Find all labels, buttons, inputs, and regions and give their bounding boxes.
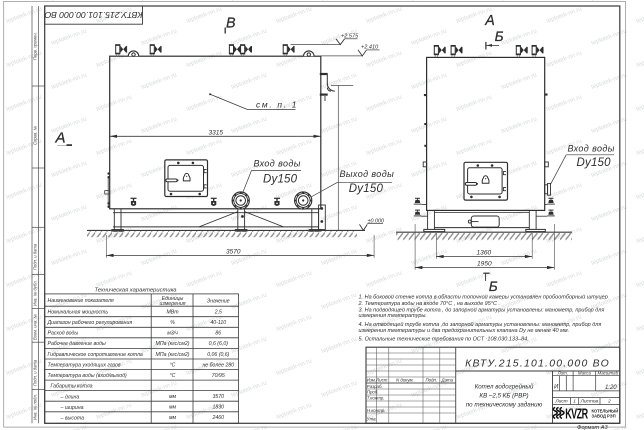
svg-text:Перв. примен.: Перв. примен. — [33, 32, 38, 60]
svg-text:1360: 1360 — [477, 250, 492, 257]
svg-text:Б: Б — [489, 279, 498, 294]
svg-text:1:20: 1:20 — [605, 385, 617, 391]
svg-text:Изм.Лист: Изм.Лист — [367, 378, 388, 383]
svg-text:Dy150: Dy150 — [349, 183, 384, 195]
svg-text:ЗАВОД РЭП: ЗАВОД РЭП — [592, 414, 616, 419]
svg-text:– ширина: – ширина — [60, 405, 84, 411]
svg-text:Лист: Лист — [554, 399, 567, 405]
svg-text:– длина: – длина — [60, 395, 80, 401]
svg-text:МПа (кгс/см2): МПа (кгс/см2) — [156, 352, 190, 358]
svg-text:МВт: МВт — [166, 310, 179, 316]
svg-text:Масштаб: Масштаб — [598, 371, 619, 376]
svg-text:3570: 3570 — [226, 249, 241, 256]
svg-text:2. Температура воды на входе: 2. Температура воды на входе 70°С , на в… — [358, 301, 501, 307]
svg-text:2460: 2460 — [212, 415, 225, 421]
svg-text:Вход воды: Вход воды — [568, 143, 615, 153]
svg-text:0,06 (0,6): 0,06 (0,6) — [207, 352, 229, 358]
svg-text:КВ –2,5 КБ (РВР): КВ –2,5 КБ (РВР) — [479, 392, 528, 399]
svg-text:Утв.: Утв. — [367, 417, 377, 422]
svg-text:Диапазон рабочего регулировани: Диапазон рабочего регулирования — [47, 320, 133, 326]
svg-text:4. На отводящей трубе котла ,: 4. На отводящей трубе котла ,до запорной… — [359, 321, 602, 328]
svg-text:Лит.: Лит. — [557, 371, 568, 376]
svg-text:Проб.: Проб. — [367, 390, 379, 395]
svg-text:– высота: – высота — [60, 415, 85, 421]
svg-text:Подп. и дата: Подп. и дата — [33, 359, 38, 386]
svg-text:2,5: 2,5 — [214, 310, 222, 316]
svg-text:см. п. 1: см. п. 1 — [256, 99, 298, 109]
svg-text:°С: °С — [170, 373, 176, 379]
svg-text:1950: 1950 — [477, 261, 492, 268]
svg-text:Т.контр.: Т.контр. — [367, 396, 385, 401]
svg-text:1: 1 — [573, 399, 576, 405]
svg-text:Dy150: Dy150 — [263, 173, 298, 185]
svg-text:Масса: Масса — [578, 371, 592, 376]
svg-text:измерения: измерения — [160, 301, 186, 307]
svg-text:Вход воды: Вход воды — [254, 159, 301, 169]
svg-text:1830: 1830 — [213, 405, 225, 411]
svg-text:Б: Б — [495, 29, 504, 44]
svg-text:Расход воды: Расход воды — [48, 331, 79, 337]
svg-text:Инв. № дубл.: Инв. № дубл. — [33, 280, 38, 306]
svg-text:Разраб.: Разраб. — [367, 384, 383, 389]
svg-text:Котел водогрейный: Котел водогрейный — [475, 383, 534, 390]
svg-text:Дата: Дата — [441, 378, 454, 383]
svg-text:1. На боковой стенке котла в: 1. На боковой стенке котла в области топ… — [359, 294, 608, 301]
svg-text:2: 2 — [607, 399, 611, 405]
svg-text:Инв. № подл.: Инв. № подл. — [33, 394, 38, 420]
svg-text:по техническому заданию: по техническому заданию — [466, 401, 543, 408]
svg-text:Габариты котла: Габариты котла — [51, 383, 93, 389]
svg-text:70/95: 70/95 — [212, 373, 225, 379]
svg-text:МПа (кгс/см2): МПа (кгс/см2) — [156, 341, 190, 347]
svg-text:Температура воды (вход/выход): Температура воды (вход/выход) — [48, 373, 127, 379]
svg-text:Наименование показателя: Наименование показателя — [48, 298, 114, 304]
svg-text:КВТУ.215.101.00.000 ВО: КВТУ.215.101.00.000 ВО — [465, 359, 610, 370]
svg-text:+2.575: +2.575 — [341, 33, 359, 39]
svg-text:%: % — [170, 320, 175, 326]
svg-text:Справ. №: Справ. № — [33, 126, 38, 145]
svg-text:KVZR: KVZR — [565, 405, 588, 422]
svg-text:Подп. и дата: Подп. и дата — [33, 243, 38, 270]
svg-text:+2.410: +2.410 — [361, 45, 379, 51]
svg-text:3570: 3570 — [213, 394, 225, 400]
svg-text:Dy150: Dy150 — [577, 157, 612, 169]
svg-text:5. Остальные технические треб: 5. Остальные технические требования по О… — [359, 337, 529, 343]
svg-text:А: А — [55, 130, 66, 147]
svg-text:Выход воды: Выход воды — [340, 169, 395, 179]
svg-text:КВТУ.215.101.00.000 ВО: КВТУ.215.101.00.000 ВО — [44, 10, 142, 20]
svg-text:0,6 (6,0): 0,6 (6,0) — [209, 341, 229, 347]
svg-text:В: В — [226, 16, 236, 32]
svg-text:измерения температуры и два пр: измерения температуры и два предохраните… — [359, 328, 570, 334]
svg-text:Формат А3: Формат А3 — [577, 425, 608, 430]
svg-text:40-110: 40-110 — [210, 320, 226, 326]
svg-text:°С: °С — [170, 362, 176, 368]
svg-text:Гидравлическое сопротивление к: Гидравлическое сопротивление котла — [48, 352, 143, 358]
svg-text:Значение: Значение — [207, 299, 230, 305]
svg-text:А: А — [484, 13, 495, 29]
svg-text:Подп.: Подп. — [426, 378, 438, 383]
svg-text:Температура уходящих газов: Температура уходящих газов — [48, 362, 121, 368]
svg-text:Взам. инв. №: Взам. инв. № — [33, 314, 38, 340]
svg-text:86: 86 — [215, 331, 221, 337]
svg-text:измерения температуры.: измерения температуры. — [359, 313, 427, 319]
svg-text:Н.контр.: Н.контр. — [367, 408, 386, 413]
svg-text:не более 280: не более 280 — [202, 362, 234, 368]
svg-text:Номинальная мощность: Номинальная мощность — [48, 310, 109, 316]
svg-text:Рабочее давление воды: Рабочее давление воды — [48, 341, 106, 347]
svg-text:±0.000: ±0.000 — [368, 219, 384, 225]
svg-text:N докум.: N докум. — [396, 378, 414, 383]
svg-text:Техническая характеристика: Техническая характеристика — [94, 287, 177, 293]
svg-text:И: И — [554, 385, 559, 391]
svg-text:мм: мм — [169, 394, 177, 400]
svg-text:3315: 3315 — [209, 129, 224, 136]
svg-text:мм: мм — [169, 405, 177, 411]
svg-text:м3/ч: м3/ч — [167, 331, 178, 337]
svg-text:мм: мм — [169, 415, 177, 421]
svg-text:Листов: Листов — [580, 399, 599, 405]
